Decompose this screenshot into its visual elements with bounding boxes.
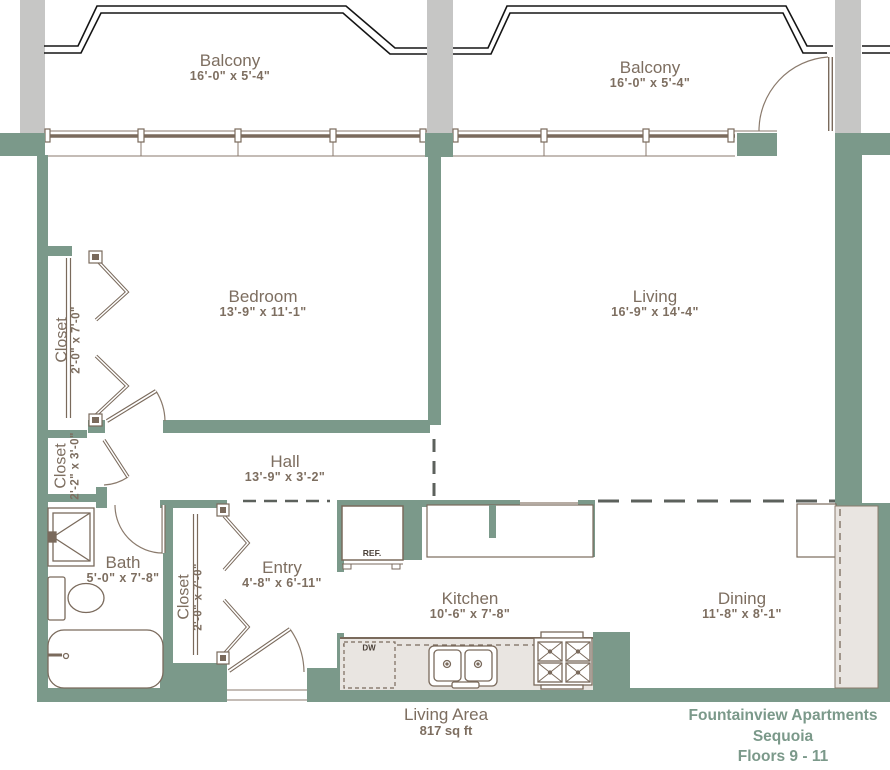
room-label-bedroom: Bedroom 13'-9" x 11'-1" (219, 288, 306, 320)
dining-cabinet (835, 506, 878, 688)
room-label-kitchen: Kitchen 10'-6" x 7'-8" (430, 590, 510, 622)
room-label-balcony-left: Balcony 16'-0" x 5'-4" (190, 52, 270, 84)
column-right (835, 0, 861, 133)
title-line-floors: Floors 9 - 11 (689, 747, 878, 768)
living-area-note: Living Area 817 sq ft (404, 706, 488, 739)
window-wall-band (45, 129, 777, 156)
title-line-apartments: Fountainview Apartments (689, 706, 878, 727)
room-label-entry: Entry 4'-8" x 6'-11" (242, 559, 322, 591)
floor-plan: Balcony 16'-0" x 5'-4" Balcony 16'-0" x … (0, 0, 890, 770)
dishwasher-label: DW (362, 644, 375, 653)
kitchen-sink (429, 646, 497, 688)
room-label-closet-bedroom: Closet 2'-0" x 7'-0" (55, 306, 84, 374)
refrigerator (342, 506, 403, 569)
bath-door (115, 505, 164, 553)
balcony-door (759, 57, 831, 131)
refrigerator-label: REF. (363, 548, 381, 558)
room-label-closet-entry: Closet 2'-0" x 7'-0" (177, 563, 206, 631)
bathtub (48, 630, 163, 688)
column-left (20, 0, 45, 133)
room-label-hall: Hall 13'-9" x 3'-2" (245, 453, 325, 485)
balcony-outline-left (44, 6, 427, 54)
room-label-living: Living 16'-9" x 14'-4" (611, 288, 699, 320)
title-line-model: Sequoia (689, 727, 878, 748)
hall-closet-door (104, 440, 128, 485)
room-label-dining: Dining 11'-8" x 8'-1" (702, 590, 782, 622)
upper-cabinets (427, 504, 836, 557)
entry-threshold (227, 690, 307, 700)
room-label-closet-hall: Closet 2'-2" x 3'-0" (54, 432, 83, 500)
stove (534, 632, 592, 689)
column-center (427, 0, 453, 133)
room-label-balcony-right: Balcony 16'-0" x 5'-4" (610, 59, 690, 91)
balcony-outline-right (453, 6, 890, 54)
floor-plan-drawing (0, 0, 890, 770)
title-block: Fountainview Apartments Sequoia Floors 9… (689, 706, 878, 768)
room-label-bath: Bath 5'-0" x 7'-8" (86, 554, 159, 586)
